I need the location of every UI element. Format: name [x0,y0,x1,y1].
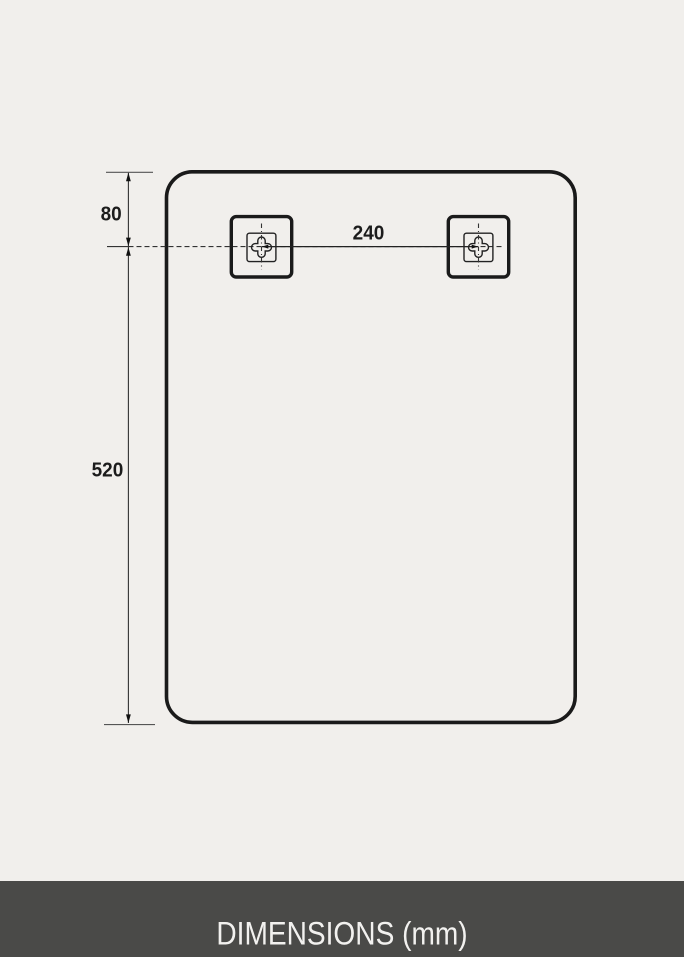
svg-text:240: 240 [353,222,385,245]
svg-text:520: 520 [92,459,124,482]
svg-text:80: 80 [101,203,122,226]
